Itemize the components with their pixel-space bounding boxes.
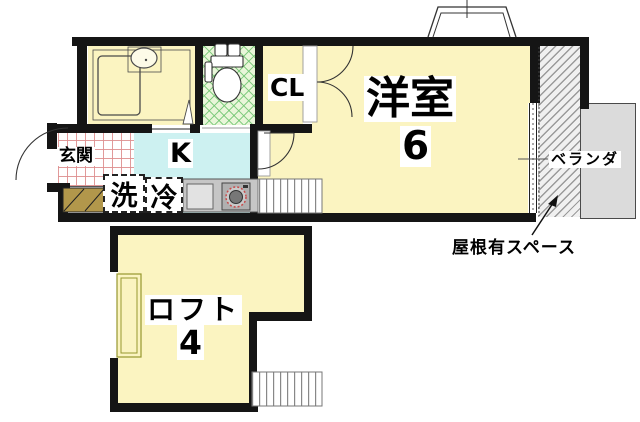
wall-loft-notch-horizontal [250, 312, 312, 321]
wall-bottom [58, 213, 536, 222]
wall-roofspace-right [580, 37, 589, 109]
wall-mid-b [190, 124, 200, 133]
staircase-upper [258, 179, 322, 213]
closet-door-arc-bottom [317, 82, 352, 117]
wall-toilet-closet [255, 37, 263, 125]
loft-window [110, 272, 141, 358]
structure-overlay [0, 0, 640, 422]
kitchen-room-door [258, 131, 294, 176]
sink-icon [131, 48, 157, 68]
roofed-space-label: 屋根有スペース [450, 239, 578, 258]
western-room-size-label: 6 [400, 126, 431, 167]
shoe-cabinet [63, 188, 105, 212]
floor-plan: 洗 冷 洋室 6 CL K 玄関 ベランダ 屋根有スペース ロフト 4 [0, 0, 640, 422]
kitchen-label: K [168, 139, 193, 168]
wall-bath-toilet [195, 37, 203, 125]
washer-space-box: 洗 [103, 174, 145, 213]
wall-loft-top [110, 226, 312, 235]
wall-loft-left-upper [110, 226, 118, 272]
sink-drain [145, 59, 147, 61]
entrance-label: 玄関 [57, 147, 95, 166]
stove-icon [222, 183, 250, 210]
kitchen-counter [183, 179, 258, 212]
veranda-label: ベランダ [549, 151, 621, 168]
washer-label: 洗 [111, 174, 138, 213]
bathroom-fixtures [93, 47, 193, 129]
western-room-label: 洋室 [364, 76, 456, 122]
refrigerator-label: 冷 [151, 176, 178, 215]
staircase-loft [252, 372, 322, 406]
wall-bath-left [77, 37, 87, 133]
kitchen-sink-icon [187, 184, 213, 209]
loft-label: ロフト [145, 295, 242, 325]
wall-top [72, 37, 589, 46]
toilet-icon [202, 44, 250, 128]
closet-door-arc-top [317, 46, 353, 82]
loft-size-label: 4 [177, 325, 204, 360]
wall-room-right-upper [530, 37, 540, 103]
bay-window [428, 0, 516, 37]
room-right-window [518, 103, 548, 213]
wall-loft-right-upper [304, 226, 312, 321]
wall-loft-bottom [110, 403, 258, 412]
bathroom-door-icon [183, 100, 193, 124]
closet-doors [303, 46, 353, 122]
refrigerator-space-box: 冷 [145, 177, 183, 213]
closet-label: CL [268, 74, 306, 101]
